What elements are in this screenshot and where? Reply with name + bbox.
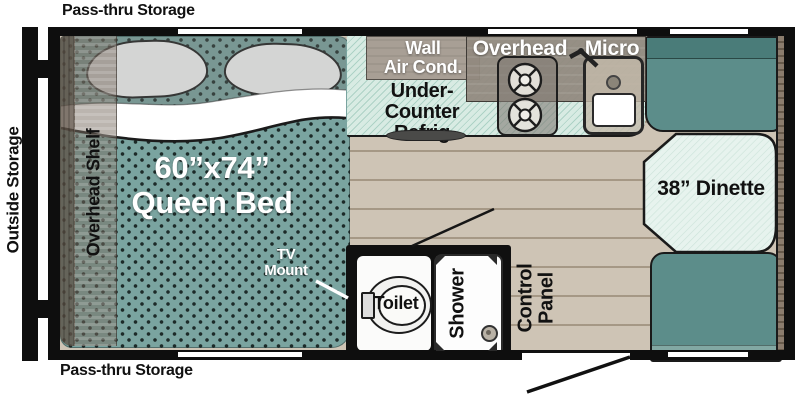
window-opening xyxy=(178,29,302,34)
rv-floorplan: Overhead Shelf 60”x74” Queen Bed TV Moun… xyxy=(0,0,800,400)
trailer-wall-right xyxy=(784,27,795,360)
sink-drain-icon xyxy=(606,75,621,90)
toilet-label: Toilet xyxy=(354,294,438,313)
window-opening xyxy=(668,352,748,357)
dinette-seat-back xyxy=(647,38,780,59)
trailer-wall-left xyxy=(48,27,60,360)
bed-size-label: 60”x74” Queen Bed xyxy=(75,152,349,219)
sink-icon xyxy=(583,56,644,135)
entry-door-swing-line xyxy=(527,357,630,392)
window-opening xyxy=(488,29,637,34)
entry-door-threshold xyxy=(522,350,630,353)
bed-type-label: Queen Bed xyxy=(75,187,349,220)
dinette-label: 38” Dinette xyxy=(642,178,780,200)
control-panel-label: Control Panel xyxy=(506,238,566,358)
dinette-seat-bottom xyxy=(650,252,782,362)
sink-basin xyxy=(592,93,636,127)
window-opening xyxy=(178,352,302,357)
wall-air-conditioner: Wall Air Cond. xyxy=(366,36,480,80)
storage-bar-connector xyxy=(38,300,48,318)
shower-drain-icon xyxy=(481,325,498,342)
stove-icon xyxy=(497,56,558,136)
refrig-handle xyxy=(386,130,466,141)
window-opening xyxy=(670,29,748,34)
tv-mount-label: TV Mount xyxy=(250,247,322,279)
shower-label: Shower xyxy=(436,254,480,353)
outside-storage-label: Outside Storage xyxy=(0,85,26,295)
pass-thru-storage-label-top: Pass-thru Storage xyxy=(62,3,195,20)
dinette-seat-top xyxy=(645,36,782,132)
pass-thru-storage-label-bottom: Pass-thru Storage xyxy=(60,363,193,380)
storage-bar-connector xyxy=(38,60,48,78)
